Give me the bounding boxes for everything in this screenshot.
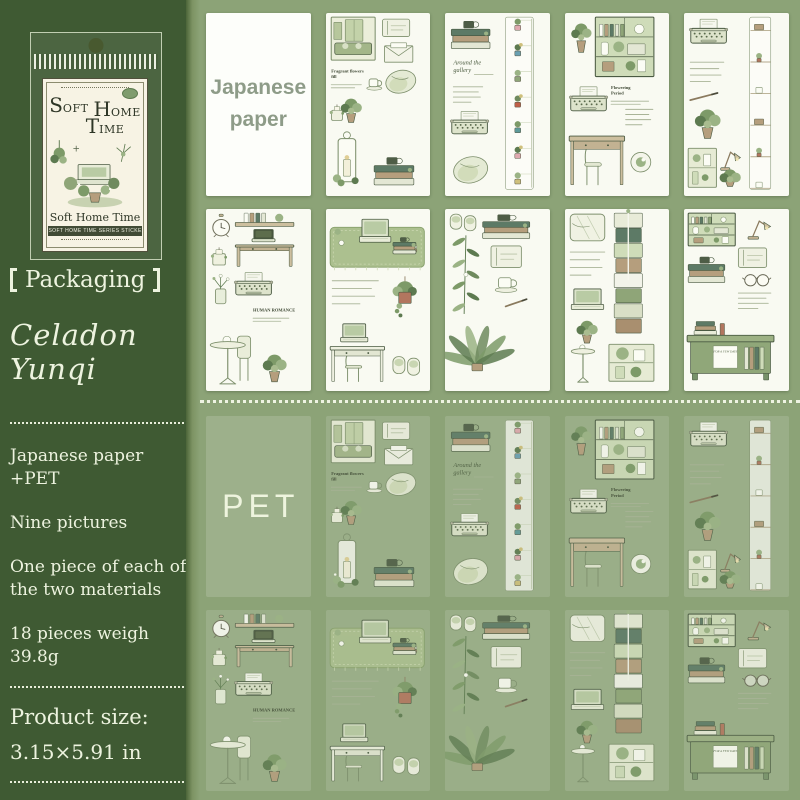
material-label-paper: Japanese paper (206, 13, 311, 196)
sticker-sheet-paper-2: Around thegallery (445, 13, 550, 196)
svg-text:Fragrant flowers: Fragrant flowers (331, 471, 364, 476)
package-title: SOFT HOMETIME (47, 95, 143, 137)
pet-section: PETFragrant flowersfillAround thegallery… (200, 400, 800, 800)
svg-text:HUMAN ROMANCE: HUMAN ROMANCE (253, 307, 295, 312)
sticker-sheet-paper-5: HUMAN ROMANCE (206, 209, 311, 392)
svg-text:Fragrant flowers: Fragrant flowers (331, 69, 364, 74)
label-tiny-text-row (61, 237, 128, 240)
sticker-sheet-pet-5: HUMAN ROMANCE (206, 610, 311, 791)
svg-text:Around the: Around the (453, 462, 482, 469)
dotted-divider (10, 686, 188, 688)
sticker-sheet-paper-9: FOR A FEW DAYS (684, 209, 789, 392)
sticker-sheet-pet-9: FOR A FEW DAYS (684, 610, 789, 791)
sticker-sheet-pet-3: FloweringPeriod (565, 416, 670, 597)
product-size-label: Product size: (10, 705, 200, 729)
sidebar: SOFT HOMETIME (0, 0, 200, 800)
svg-text:gallery: gallery (454, 67, 472, 74)
sticker-sheet-paper-8 (565, 209, 670, 392)
packaging-heading: Packaging (10, 267, 200, 293)
svg-text:HUMAN ROMANCE: HUMAN ROMANCE (253, 708, 295, 713)
brand-name: Celadon Yunqi (10, 318, 200, 386)
sticker-sheet-pet-2: Around thegallery (445, 416, 550, 597)
cjk-bracket-left-icon (10, 268, 17, 292)
svg-text:gallery: gallery (454, 470, 472, 477)
dotted-divider (10, 781, 188, 783)
sticker-sheet-pet-7 (445, 610, 550, 791)
svg-text:FOR A FEW DAYS: FOR A FEW DAYS (713, 749, 738, 753)
bag-stripes (34, 54, 158, 69)
product-package: SOFT HOMETIME (30, 32, 162, 260)
svg-text:fill: fill (331, 477, 337, 482)
spec-pictures: Nine pictures (10, 512, 194, 535)
package-artwork (48, 138, 142, 210)
sticker-sheet-paper-6 (326, 209, 431, 392)
spec-pieces: One piece of each of the two materials (10, 556, 194, 602)
dotted-divider (10, 422, 188, 424)
hang-hole-icon (89, 38, 104, 53)
product-detail-image: SOFT HOMETIME (0, 0, 800, 800)
spec-material: Japanese paper +PET (10, 445, 194, 491)
sticker-sheet-paper-1: Fragrant flowersfill (326, 13, 431, 196)
sticker-sheet-pet-1: Fragrant flowersfill (326, 416, 431, 597)
svg-text:Period: Period (611, 91, 624, 96)
material-label-text: Japanese paper (206, 72, 311, 137)
svg-text:Around the: Around the (453, 59, 482, 66)
package-subtitle: Soft Home Time (47, 211, 143, 224)
packaging-heading-text: Packaging (25, 267, 145, 293)
package-label: SOFT HOMETIME (42, 78, 148, 252)
sidebar-edge-highlight (186, 0, 200, 800)
sticker-sheet-pet-4 (684, 416, 789, 597)
spec-weight: 18 pieces weigh 39.8g (10, 623, 194, 669)
label-badge-icon (122, 88, 138, 99)
material-label-text: PET (217, 488, 299, 525)
package-banner: SOFT HOME TIME SERIES STICKER BOOK (48, 226, 141, 236)
sticker-sheet-paper-4 (684, 13, 789, 196)
sticker-sheet-pet-6 (326, 610, 431, 791)
cjk-bracket-right-icon (153, 268, 160, 292)
sticker-sheet-paper-3: FloweringPeriod (565, 13, 670, 196)
svg-text:Flowering: Flowering (611, 85, 631, 90)
svg-text:FOR A FEW DAYS: FOR A FEW DAYS (713, 349, 738, 353)
label-tiny-text-row (61, 85, 128, 88)
product-size-value: 3.15×5.91 in (10, 740, 200, 764)
svg-text:Flowering: Flowering (611, 487, 631, 492)
material-label-pet: PET (206, 416, 311, 597)
sticker-sheet-paper-7 (445, 209, 550, 392)
japanese-paper-section: Japanese paperFragrant flowersfillAround… (200, 0, 800, 400)
svg-text:Period: Period (611, 493, 624, 498)
sticker-sheet-pet-8 (565, 610, 670, 791)
svg-text:fill: fill (331, 74, 337, 79)
